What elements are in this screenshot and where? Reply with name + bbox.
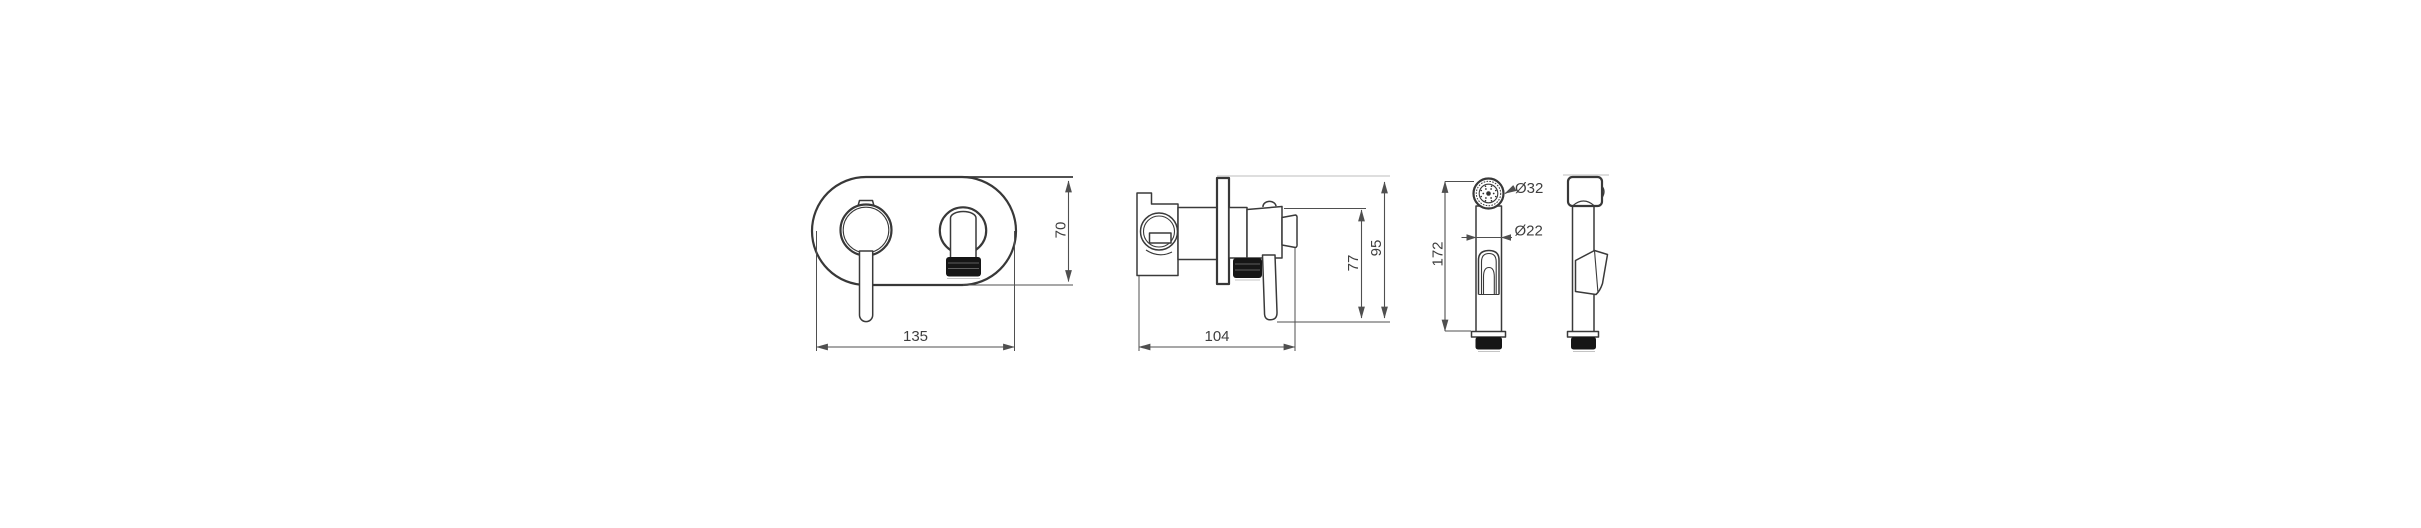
shower-knurled-nut-front	[1476, 337, 1503, 350]
technical-drawing-canvas: 135 70 10	[0, 0, 2421, 528]
side-knurled-nut	[1233, 258, 1262, 278]
shower-knurled-nut-side	[1571, 337, 1596, 350]
cartridge-top-dome	[1263, 201, 1276, 207]
head-diameter-label: Ø32	[1515, 180, 1543, 197]
handle-ring-outer	[841, 205, 892, 256]
plate-width-label: 135	[903, 328, 928, 345]
handshower-front-view: 172 Ø32 Ø22	[1430, 179, 1544, 352]
dimension-plate-height: 70	[1053, 181, 1070, 282]
overall-height-label: 95	[1368, 240, 1385, 257]
trim-side-view: 104 77 95	[1137, 176, 1390, 351]
hose-outlet-knurled-nut	[946, 257, 981, 277]
trim-height-label: 77	[1345, 255, 1362, 272]
head-diameter-leader	[1505, 189, 1514, 194]
shower-body-front	[1476, 206, 1502, 332]
valve-inlet-slot	[1150, 233, 1172, 243]
dimension-shower-height: 172	[1430, 182, 1475, 332]
cartridge-housing	[1247, 207, 1282, 259]
lever-handle-side	[1263, 255, 1278, 320]
shower-base-flange-side	[1568, 332, 1599, 338]
shower-height-label: 172	[1430, 241, 1447, 266]
hose-outlet-cylinder	[951, 212, 977, 257]
valve-body-section	[1178, 208, 1217, 260]
plate-edge-on	[1217, 178, 1229, 284]
body-diameter-arrow-right	[1501, 234, 1511, 240]
trim-body-neck	[1229, 208, 1247, 259]
plate-height-label: 70	[1053, 222, 1070, 239]
shower-base-flange-front	[1472, 332, 1506, 338]
handshower-side-view	[1563, 175, 1609, 352]
depth-label: 104	[1204, 328, 1229, 345]
spout-cap	[1282, 215, 1297, 248]
body-diameter-label: Ø22	[1515, 223, 1543, 240]
spray-face-center-dot	[1486, 191, 1491, 196]
dimension-head-diameter: Ø32	[1505, 180, 1543, 197]
drawing-svg: 135 70 10	[0, 0, 2421, 528]
trim-front-view: 135 70	[812, 177, 1073, 351]
body-diameter-arrow-left	[1467, 234, 1477, 240]
dimension-overall-height: 95	[1277, 182, 1390, 322]
lever-handle-front	[860, 251, 873, 322]
